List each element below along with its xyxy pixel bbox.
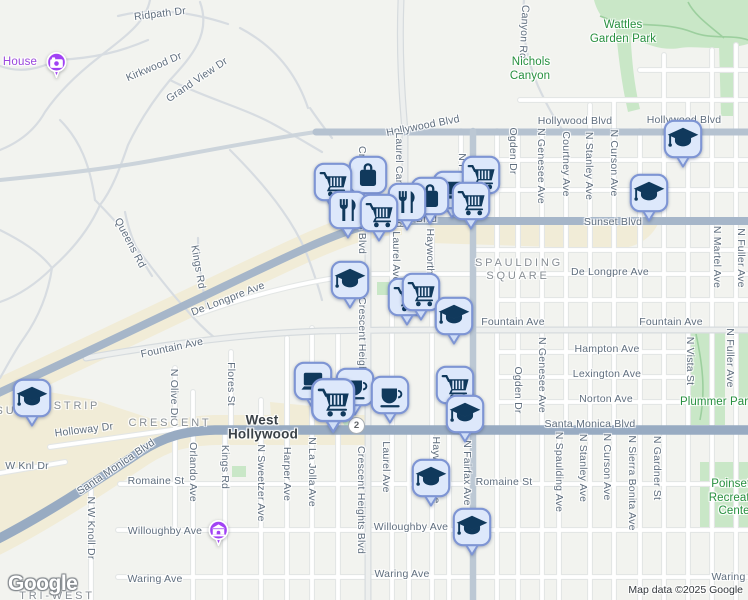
coffee-cup-icon — [369, 374, 411, 427]
school-icon — [662, 118, 704, 171]
map-markers-layer — [0, 0, 748, 600]
google-logo[interactable]: Google — [8, 572, 77, 596]
camera-icon — [45, 51, 68, 80]
school-icon — [628, 172, 670, 225]
school-icon — [451, 506, 493, 559]
camera-poi-pin[interactable] — [45, 51, 68, 80]
cup-marker[interactable] — [369, 374, 411, 427]
shopping-cart-icon — [309, 376, 357, 436]
shopping-cart-icon — [358, 192, 400, 245]
cart-marker[interactable] — [450, 180, 492, 233]
grad-marker[interactable] — [451, 506, 493, 559]
grad-marker[interactable] — [11, 377, 53, 430]
school-icon — [433, 295, 475, 348]
cart-marker[interactable] — [309, 376, 357, 436]
shopping-cart-icon — [450, 180, 492, 233]
grad-marker[interactable] — [329, 259, 371, 312]
school-icon — [444, 393, 486, 446]
cart-marker[interactable] — [358, 192, 400, 245]
map-viewport[interactable]: Ridpath DrKirkwood DrGrand View DrHollyw… — [0, 0, 748, 600]
museum-poi-pin[interactable] — [207, 519, 230, 548]
map-attribution: Map data ©2025 Google — [628, 584, 743, 596]
grad-marker[interactable] — [410, 457, 452, 510]
grad-marker[interactable] — [662, 118, 704, 171]
museum-icon — [207, 519, 230, 548]
grad-marker[interactable] — [628, 172, 670, 225]
school-icon — [410, 457, 452, 510]
grad-marker[interactable] — [444, 393, 486, 446]
grad-marker[interactable] — [433, 295, 475, 348]
school-icon — [11, 377, 53, 430]
school-icon — [329, 259, 371, 312]
